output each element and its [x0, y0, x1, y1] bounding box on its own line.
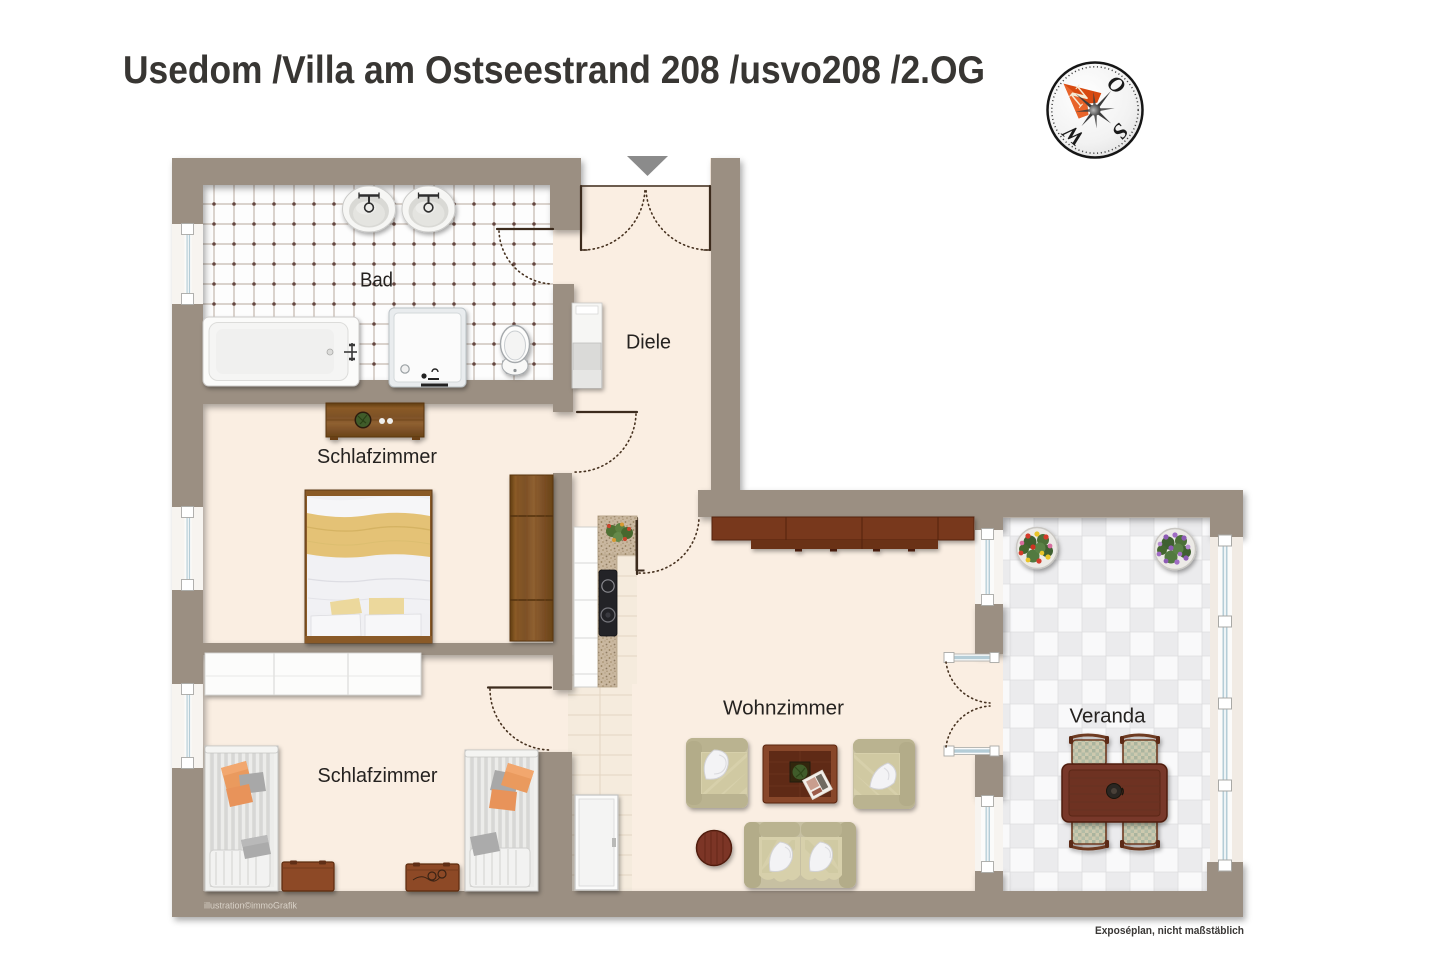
svg-text:Diele: Diele: [626, 332, 671, 354]
svg-text:Veranda: Veranda: [1070, 706, 1147, 728]
svg-text:Bad: Bad: [360, 270, 393, 292]
svg-text:illustration©immoGrafik: illustration©immoGrafik: [204, 901, 297, 912]
svg-text:Schlafzimmer: Schlafzimmer: [318, 765, 438, 787]
svg-text:Wohnzimmer: Wohnzimmer: [723, 698, 844, 720]
svg-text:Usedom /Villa am Ostseestrand: Usedom /Villa am Ostseestrand 208 /usvo2…: [123, 49, 985, 92]
svg-text:Schlafzimmer: Schlafzimmer: [317, 446, 437, 468]
svg-text:Exposéplan, nicht maßstäblich: Exposéplan, nicht maßstäblich: [1095, 925, 1244, 937]
